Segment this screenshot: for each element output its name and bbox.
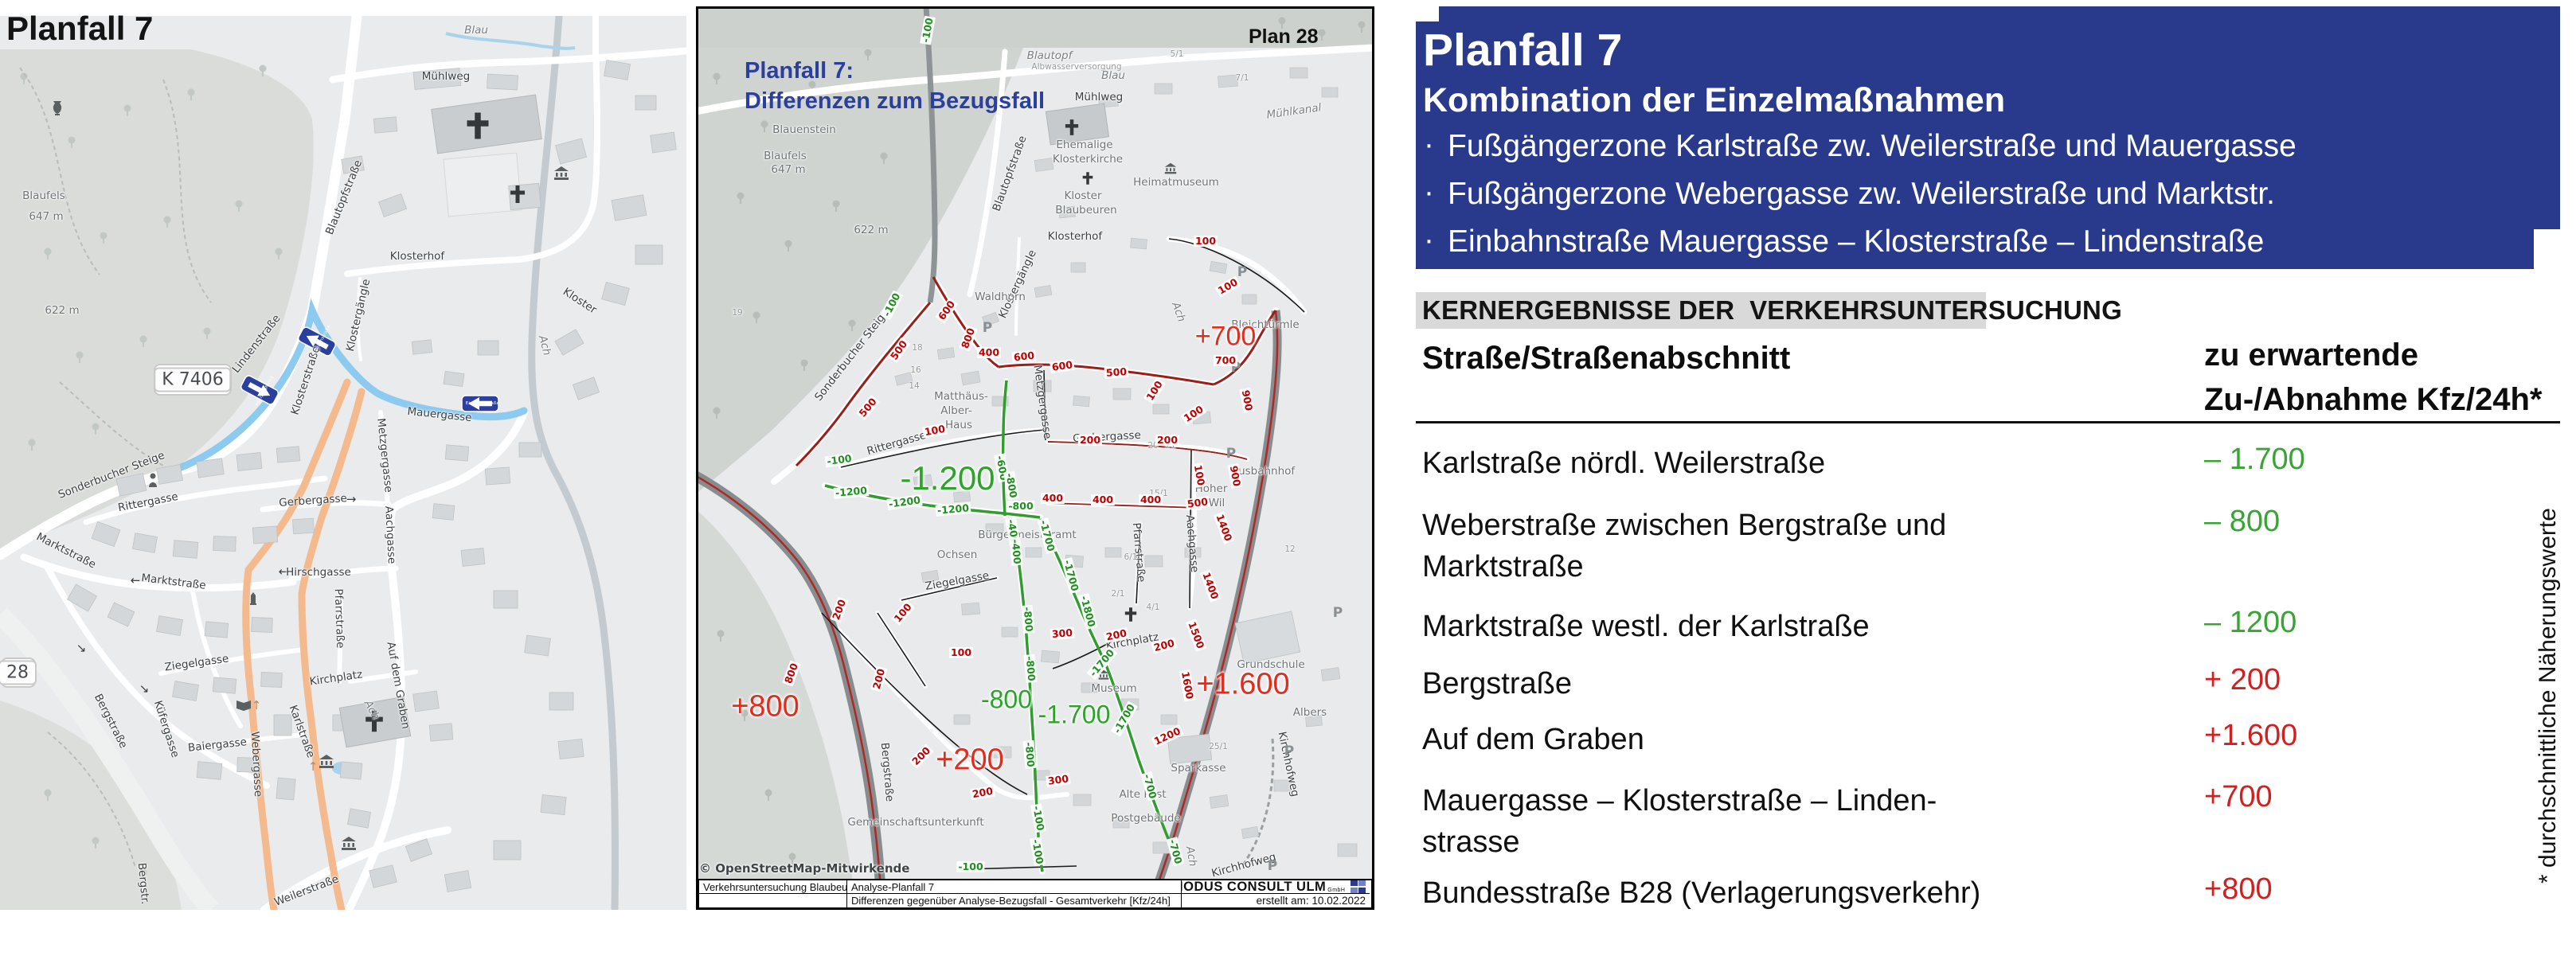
plan-number-label: Plan 28 — [1249, 25, 1319, 49]
traffic-diff-chip: 100 — [1181, 403, 1207, 425]
footer-empty — [699, 894, 847, 907]
traffic-diff-chip: -800 — [1021, 605, 1034, 634]
map-label: Mühlweg — [422, 70, 470, 83]
footer-date: erstellt am: 10.02.2022 — [1182, 894, 1370, 907]
difference-map-title-line1: Planfall 7: — [745, 56, 1045, 86]
map-label: Webergasse — [248, 732, 264, 798]
traffic-diff-chip: -800 — [1003, 470, 1019, 500]
traffic-diff-chip: 300 — [1046, 773, 1071, 787]
traffic-diff-chip: -100 — [1030, 803, 1046, 833]
map-label: Ach — [536, 334, 553, 357]
traffic-diff-chip: 1400 — [1214, 511, 1234, 544]
map-label: K 7406 — [154, 368, 231, 392]
traffic-diff-chip: -100 — [881, 290, 904, 320]
traffic-diff-chip: 200 — [970, 785, 995, 800]
footer-logo: MODUS CONSULT ULMGmbH — [1182, 880, 1370, 894]
traffic-diff-chip: 400 — [1041, 493, 1065, 504]
traffic-diff-chip: 600 — [1011, 349, 1036, 363]
map-label: 2/1 — [1112, 589, 1125, 599]
map-label: Gemeinschaftsunterkunft — [847, 816, 983, 829]
traffic-diff-chip: 200 — [909, 743, 933, 768]
traffic-diff-chip: 100 — [1214, 275, 1241, 297]
map-label: Metzgergasse — [374, 418, 395, 494]
traffic-diff-chip: -100 — [825, 453, 854, 468]
map-label: Alber- — [940, 404, 971, 417]
map-label: Klosterhof — [390, 250, 444, 263]
map-label: Marktstraße — [141, 572, 207, 592]
map-label: Gerbergasse — [279, 492, 348, 509]
traffic-diff-chip: 1200 — [1151, 724, 1183, 747]
map-label: 647 m — [771, 163, 805, 176]
map-label: Klosterhof — [1048, 230, 1102, 243]
traffic-diff-value: +1.600 — [1196, 668, 1289, 702]
map-label: 25/1 — [1209, 742, 1228, 751]
parking-icon: P — [1226, 446, 1236, 462]
map-label: Einbahnstraße — [253, 375, 273, 407]
slide: Planfall 7 ˘ — [0, 0, 2576, 956]
parking-icon: P — [1268, 858, 1277, 874]
map-label: Mühlweg — [1075, 91, 1123, 103]
traffic-diff-chip: 400 — [1091, 494, 1115, 505]
map-label: 647 m — [29, 210, 63, 223]
traffic-diff-chip: 200 — [870, 666, 887, 693]
traffic-diff-chip: 700 — [1214, 355, 1237, 366]
traffic-diff-chip: 900 — [1239, 388, 1254, 413]
map-label: Blaufels — [22, 189, 65, 202]
traffic-diff-chip: 800 — [782, 660, 800, 686]
traffic-diff-chip: -800 — [1023, 654, 1037, 683]
traffic-diff-chip: -100 — [1030, 837, 1046, 866]
traffic-diff-chip: 500 — [856, 395, 880, 420]
map-label: Albers — [1293, 706, 1327, 719]
map-label: Kloster — [1064, 189, 1101, 202]
traffic-diff-chip: 100 — [1143, 378, 1166, 404]
traffic-diff-chip: 1400 — [1200, 569, 1221, 602]
map-label: Weilerstraße — [272, 872, 340, 908]
map-label: Ziegelgasse — [924, 569, 991, 593]
parking-icon: P — [983, 320, 992, 336]
map-label: Waldhorn — [975, 291, 1026, 303]
traffic-diff-chip: 100 — [949, 647, 973, 658]
map-label: Blaufels — [764, 150, 807, 162]
map-label: Bergstraße — [92, 692, 130, 751]
modus-consult-logo-text: MODUS CONSULT ULM — [1182, 880, 1326, 894]
traffic-diff-chip: 200 — [1155, 435, 1179, 446]
traffic-diff-chip: 100 — [922, 423, 948, 438]
traffic-diff-chip: 200 — [1078, 435, 1102, 446]
map-label: Klostergängle — [996, 248, 1039, 321]
map-label: ↘ — [76, 641, 87, 655]
traffic-diff-chip: 300 — [1050, 627, 1074, 641]
map-label: Kirchhofweg — [1276, 731, 1302, 798]
parking-icon: P — [1333, 605, 1343, 621]
map-label: Blautopfstraße — [323, 158, 365, 236]
traffic-diff-chip: 600 — [936, 298, 959, 324]
map-label: Baiergasse — [187, 736, 247, 755]
traffic-diff-value: -1.700 — [1038, 700, 1111, 730]
map-label: Blaubeuren — [1055, 204, 1116, 217]
cropped-text-artifact: ˘ — [156, 0, 168, 30]
traffic-diff-chip: 1500 — [1186, 618, 1206, 651]
traffic-diff-chip: 500 — [1104, 366, 1129, 379]
parking-icon: P — [1237, 264, 1247, 280]
map-label: Aachgasse — [382, 505, 398, 564]
map-label: 28 — [0, 661, 37, 685]
traffic-diff-chip: 400 — [1139, 494, 1163, 505]
osm-attribution: © OpenStreetMap-Mitwirkende — [699, 861, 909, 876]
traffic-diff-chip: 1600 — [1179, 669, 1196, 702]
map-label: Bergstraße — [878, 742, 896, 802]
map-label: Aachgasse — [1183, 514, 1201, 573]
map-label: ↘ — [139, 681, 150, 696]
map-label: Blau — [464, 24, 488, 37]
map-label: Pfarrstraße — [332, 588, 347, 649]
map-label: ↑ — [252, 698, 262, 712]
traffic-diff-value: -800 — [981, 685, 1032, 715]
map-label: Klosterkirche — [1053, 153, 1123, 166]
map-label: Sparkasse — [1171, 762, 1225, 775]
modus-consult-logo-icon — [1351, 880, 1366, 894]
traffic-diff-chip: -700 — [1167, 837, 1185, 867]
difference-map-title-line2: Differenzen zum Bezugsfall — [745, 86, 1045, 116]
map-footer-table: Verkehrsuntersuchung Blaubeuren Analyse-… — [698, 879, 1373, 909]
traffic-diff-chip: 500 — [1185, 496, 1210, 510]
traffic-diff-value: +800 — [731, 690, 799, 724]
map-label: Einbahnstraße — [466, 401, 499, 406]
map-label: Kloster — [561, 285, 599, 316]
map-label: ← — [131, 573, 141, 587]
map-label: Ach — [1169, 300, 1188, 323]
traffic-diff-value: +200 — [936, 743, 1004, 778]
map-label: Alte Post — [1119, 788, 1166, 801]
map-label: Haus — [945, 419, 972, 431]
traffic-diff-chip: -100 — [956, 861, 984, 872]
map-label: 14 — [909, 381, 919, 391]
logo-gmbh: GmbH — [1327, 888, 1345, 893]
map-label: 7/1 — [1236, 73, 1249, 83]
map-label: 16 — [910, 365, 921, 375]
map-label: Bergstr. — [135, 862, 152, 905]
traffic-diff-chip: -1200 — [833, 485, 869, 499]
map-label: ↑ — [308, 759, 319, 774]
map-label: 19 — [732, 308, 742, 318]
footer-project: Verkehrsuntersuchung Blaubeuren — [699, 880, 847, 894]
traffic-diff-chip: -400 — [1009, 537, 1022, 566]
traffic-diff-chip: -1700 — [1087, 646, 1118, 681]
traffic-diff-chip: 500 — [888, 338, 911, 364]
traffic-diff-chip: -100 — [920, 15, 936, 45]
map-label: Wil — [1209, 497, 1225, 509]
map-label: Rittergasse — [866, 429, 928, 458]
map-label: Matthäus- — [934, 390, 988, 403]
traffic-diff-chip: 200 — [830, 596, 848, 622]
parking-icon: P — [1284, 743, 1294, 759]
map-label: Lindenstraße — [230, 312, 283, 375]
difference-map-title: Planfall 7: Differenzen zum Bezugsfall — [745, 56, 1045, 116]
map-label: 622 m — [854, 224, 888, 236]
traffic-diff-chip: -800 — [1007, 501, 1034, 512]
left-map-title: Planfall 7 — [6, 10, 153, 48]
map-label: Ochsen — [937, 548, 978, 561]
map-label: Rittergasse — [117, 490, 179, 514]
map-label: Heimatmuseum — [1133, 176, 1219, 189]
map-label: 6/1 — [1124, 552, 1138, 562]
map-label: Ach — [362, 698, 382, 722]
map-label: Marktstraße — [34, 530, 98, 571]
map-label: 622 m — [45, 304, 79, 317]
map-label: Mühlkanal — [1266, 101, 1323, 121]
traffic-diff-chip: -1800 — [1078, 593, 1098, 630]
map-label: Karlstraße — [287, 704, 318, 759]
map-label: Sonderbucher Steige — [812, 306, 892, 404]
traffic-diff-chip: -1700 — [1111, 700, 1138, 736]
map-label: Ziegelgasse — [164, 652, 230, 673]
map-label: Blau — [1101, 69, 1125, 82]
map-label: Kirchplatz — [309, 668, 363, 688]
map-label: Klostergängle — [344, 278, 373, 353]
map-label: 18 — [912, 343, 922, 353]
traffic-diff-chip: 100 — [1194, 236, 1218, 247]
map-label: Küfergasse — [151, 699, 182, 759]
footer-analysis: Analyse-Planfall 7 — [847, 880, 1182, 894]
traffic-diff-value: -1.200 — [900, 459, 995, 498]
traffic-diff-chip: 100 — [1191, 462, 1206, 488]
map-label: Blautopfstraße — [990, 134, 1029, 213]
map-label: Hirschgasse — [286, 566, 351, 579]
traffic-diff-chip: -1200 — [935, 502, 971, 517]
map-label: Auf dem Graben — [384, 641, 412, 730]
map-label: Klosterstraße — [288, 345, 322, 417]
map-label: Sonderbucher Steige — [57, 449, 166, 501]
traffic-diff-chip: 600 — [1050, 359, 1075, 373]
traffic-diff-chip: -1700 — [1061, 557, 1081, 594]
traffic-diff-chip: 800 — [959, 325, 977, 351]
traffic-diff-chip: 400 — [977, 347, 1001, 358]
traffic-diff-chip: -800 — [1022, 740, 1036, 769]
footer-description: Differenzen gegenüber Analyse-Bezugsfall… — [847, 894, 1182, 907]
traffic-diff-chip: 100 — [891, 600, 915, 626]
map-label: → — [346, 492, 357, 506]
map-label: 12 — [1284, 544, 1295, 554]
map-label: Ach — [1183, 845, 1199, 868]
map-label: Mauergasse — [407, 405, 473, 424]
map-label: Museum — [1091, 682, 1136, 695]
map-label: 5/1 — [1171, 49, 1184, 59]
map-label: Postgebäude — [1111, 812, 1180, 825]
map-label: Ehemalige — [1056, 139, 1112, 151]
map-label: 4/1 — [1147, 603, 1160, 612]
map-label: Blauenstein — [772, 123, 836, 136]
traffic-diff-value: +700 — [1195, 322, 1257, 353]
map-label: Bürgermeisteramt — [978, 529, 1076, 541]
map-label: Metzgergasse — [1031, 364, 1054, 439]
map-text-overlay: MühlwegBlauBlautopfstraßeKlosterhofKlost… — [0, 0, 2576, 956]
